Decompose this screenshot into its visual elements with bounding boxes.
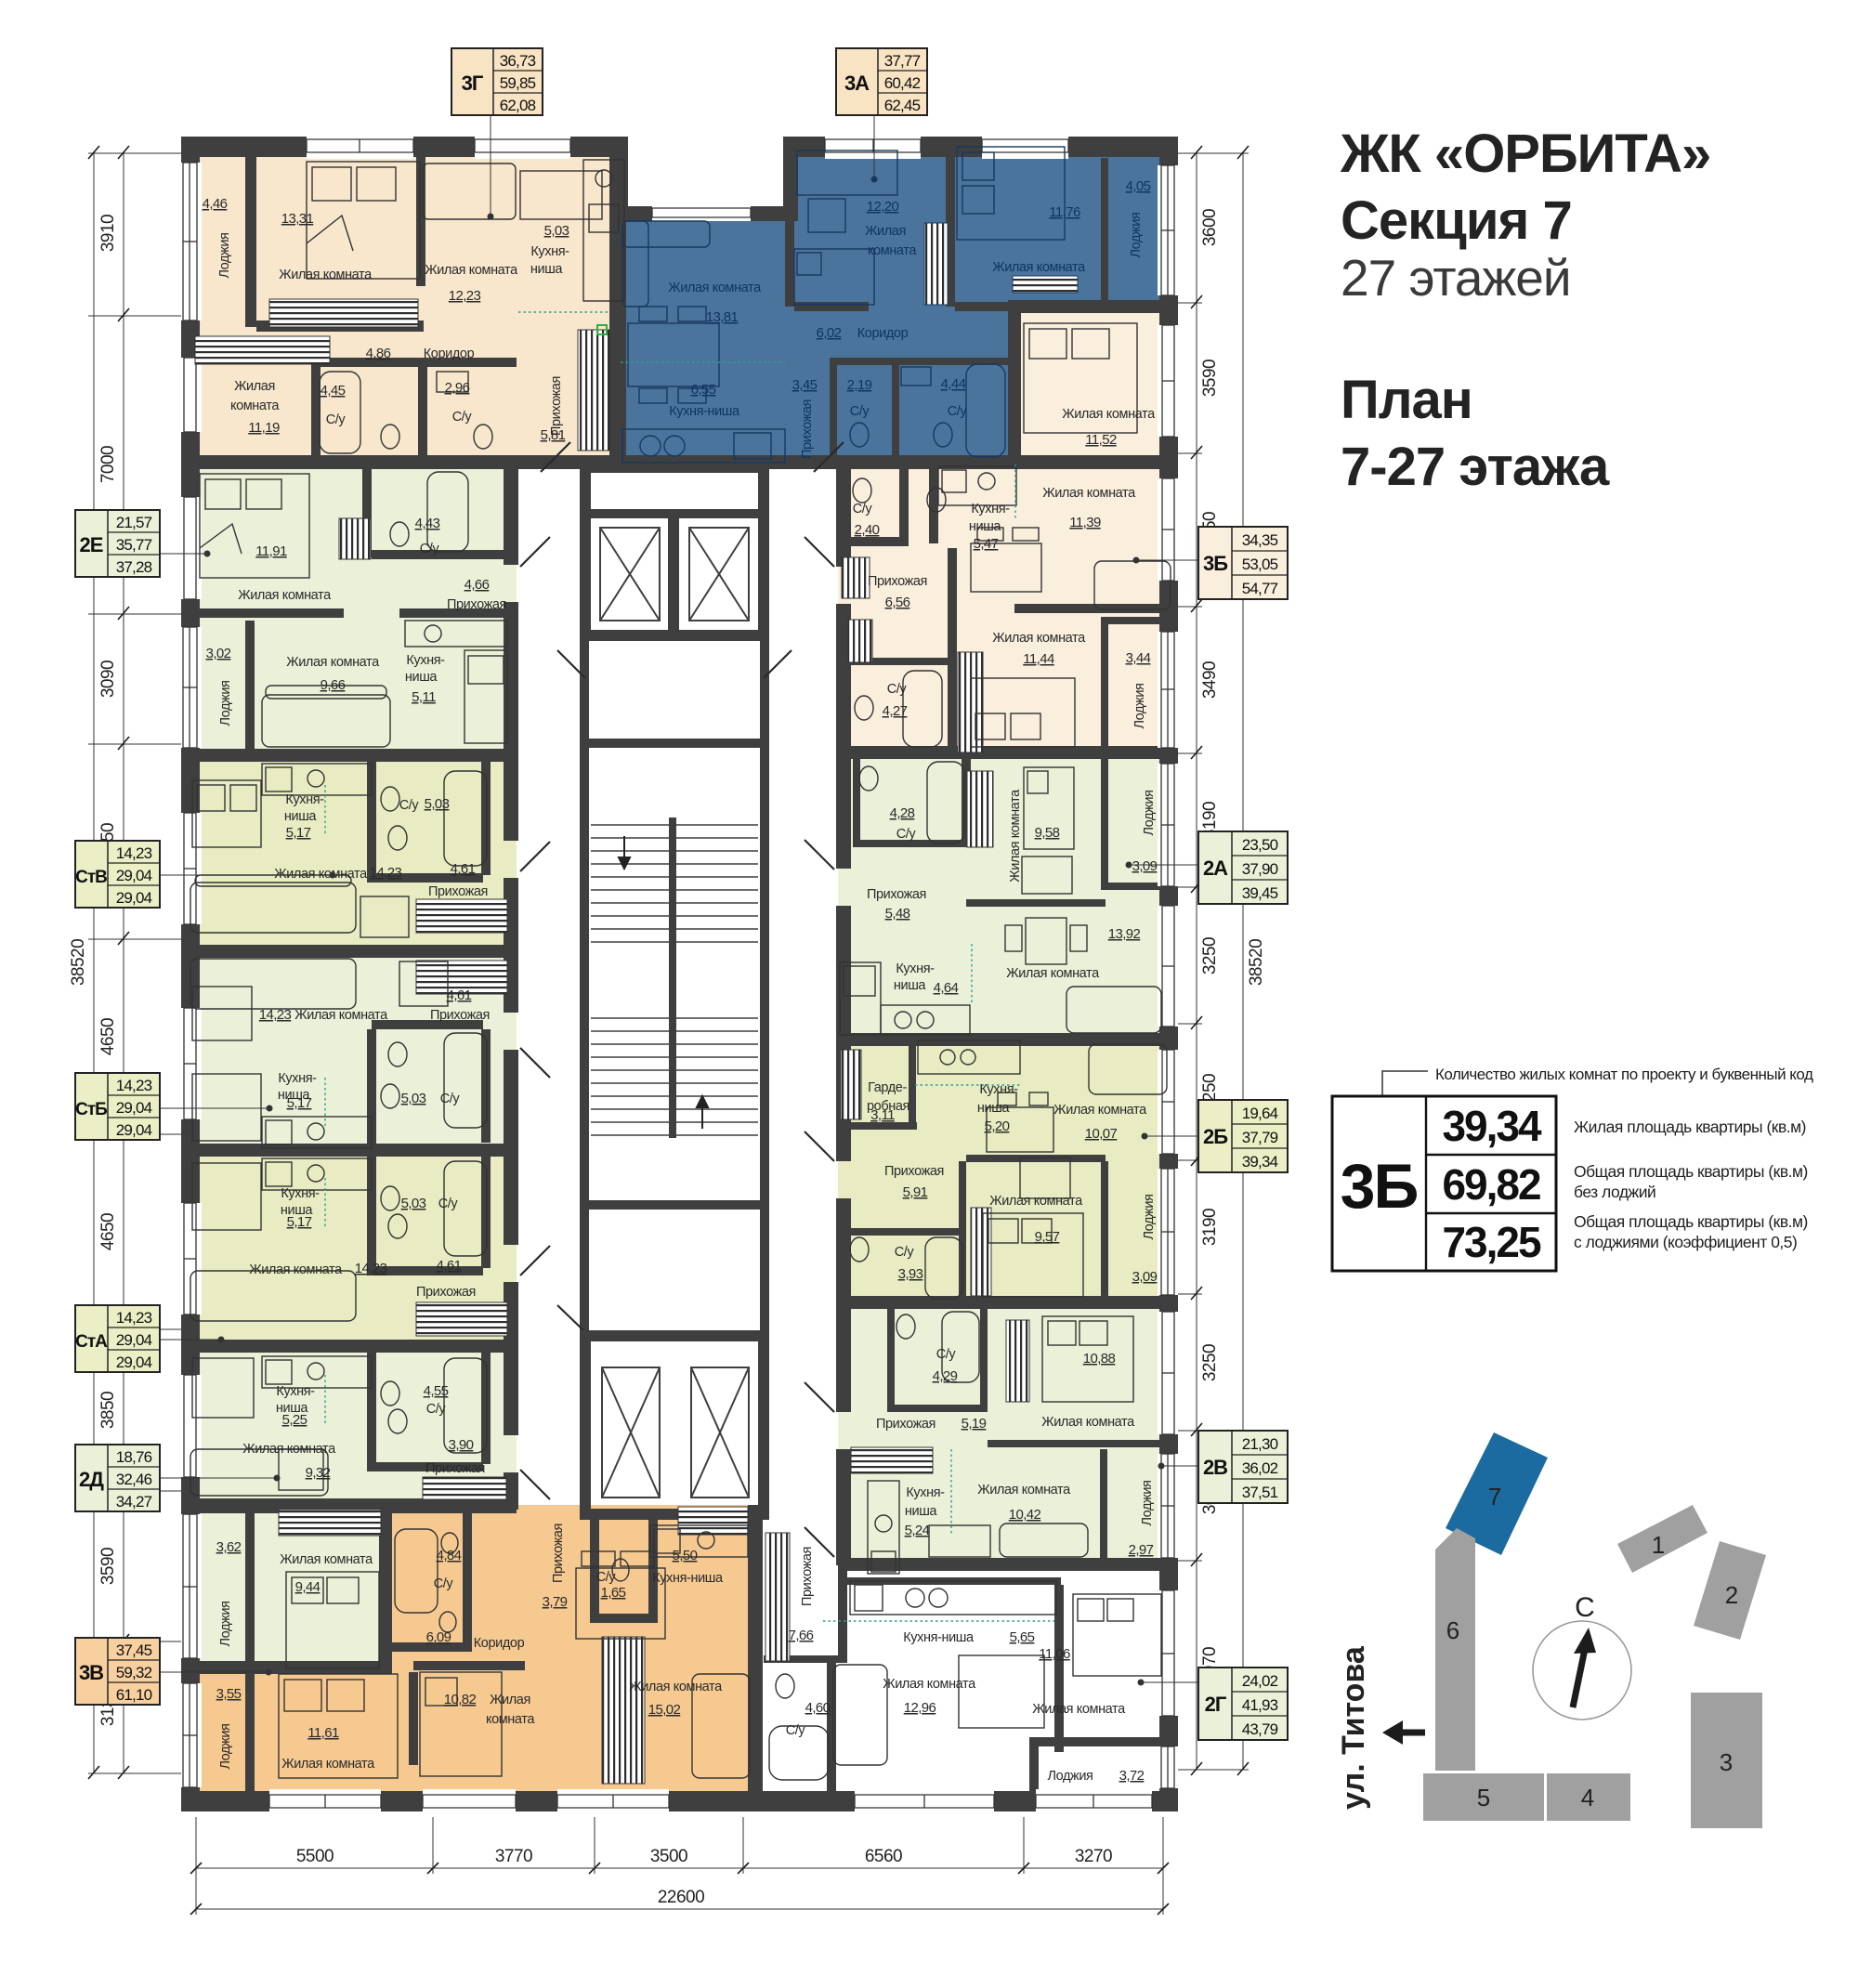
svg-text:29,04: 29,04 [116, 1354, 152, 1371]
svg-text:35,77: 35,77 [116, 536, 152, 554]
svg-text:3250: 3250 [1200, 1344, 1220, 1381]
svg-text:2,40: 2,40 [855, 522, 880, 538]
svg-text:Жилая комната: Жилая комната [1042, 486, 1136, 501]
svg-text:10,82: 10,82 [444, 1692, 477, 1707]
svg-text:Жилая комната: Жилая комната [1006, 966, 1100, 981]
svg-text:СтВ: СтВ [75, 868, 107, 887]
svg-text:Кухня-: Кухня- [530, 244, 569, 259]
svg-text:Жилая комната: Жилая комната [294, 1008, 388, 1023]
svg-text:4,55: 4,55 [424, 1383, 449, 1399]
svg-text:Лоджия: Лоджия [1048, 1769, 1093, 1784]
svg-text:4,61: 4,61 [451, 861, 476, 877]
svg-text:Коридор: Коридор [857, 326, 909, 341]
svg-text:39,34: 39,34 [1442, 1102, 1542, 1150]
svg-text:Жилая комната: Жилая комната [1053, 1103, 1147, 1118]
svg-text:Кухня-: Кухня- [971, 502, 1010, 517]
svg-text:Жилая комната: Жилая комната [989, 1194, 1083, 1209]
svg-text:43,79: 43,79 [1242, 1720, 1278, 1738]
svg-text:2,19: 2,19 [847, 377, 872, 393]
svg-text:Жилая комната: Жилая комната [242, 1442, 336, 1457]
svg-text:3,09: 3,09 [1132, 1269, 1158, 1285]
svg-text:С/у: С/у [850, 404, 870, 419]
svg-text:Кухня-: Кухня- [285, 792, 324, 807]
svg-text:Жилая: Жилая [234, 379, 275, 394]
svg-text:59,32: 59,32 [116, 1664, 152, 1681]
svg-text:3,79: 3,79 [543, 1594, 568, 1610]
svg-text:37,51: 37,51 [1242, 1484, 1278, 1501]
svg-text:с лоджиями (коэффициент 0,5): с лоджиями (коэффициент 0,5) [1574, 1233, 1797, 1251]
svg-text:29,04: 29,04 [116, 1099, 152, 1117]
svg-text:5: 5 [1477, 1784, 1490, 1811]
svg-text:3А: 3А [844, 72, 870, 95]
svg-text:2,96: 2,96 [445, 380, 470, 396]
svg-text:С/у: С/у [452, 410, 473, 425]
svg-text:С/у: С/у [420, 542, 440, 556]
svg-text:22600: 22600 [658, 1888, 704, 1907]
svg-text:Жилая комната: Жилая комната [883, 1677, 976, 1692]
svg-text:3,62: 3,62 [216, 1539, 242, 1555]
svg-text:3,45: 3,45 [792, 377, 818, 393]
svg-text:С/у: С/у [896, 827, 917, 842]
svg-text:Прихожая: Прихожая [416, 1285, 476, 1300]
svg-text:2Г: 2Г [1205, 1693, 1227, 1716]
svg-text:С/у: С/у [326, 412, 347, 427]
svg-text:29,04: 29,04 [116, 1121, 152, 1139]
svg-text:4: 4 [1581, 1784, 1594, 1811]
svg-text:4,61: 4,61 [447, 987, 472, 1003]
svg-text:4,28: 4,28 [890, 805, 915, 821]
svg-text:Коридор: Коридор [474, 1636, 525, 1651]
svg-text:3,11: 3,11 [870, 1107, 895, 1123]
svg-text:Жилая комната: Жилая комната [1062, 407, 1156, 422]
svg-text:4,66: 4,66 [464, 577, 490, 593]
svg-text:4,29: 4,29 [933, 1368, 958, 1384]
svg-text:4,27: 4,27 [883, 703, 908, 719]
svg-text:10,88: 10,88 [1083, 1351, 1116, 1367]
svg-text:3,02: 3,02 [206, 646, 231, 661]
svg-text:С/у: С/у [936, 1347, 957, 1362]
svg-text:4,44: 4,44 [941, 376, 966, 392]
svg-text:7,66: 7,66 [789, 1628, 814, 1643]
svg-text:Жилая: Жилая [865, 224, 906, 239]
svg-text:С: С [1575, 1592, 1595, 1623]
svg-text:С/у: С/у [596, 1570, 617, 1585]
svg-text:5,48: 5,48 [885, 906, 910, 922]
svg-text:37,28: 37,28 [116, 558, 152, 576]
svg-text:Жилая комната: Жилая комната [992, 631, 1086, 646]
svg-text:Количество жилых комнат по про: Количество жилых комнат по проекту и бук… [1435, 1066, 1813, 1083]
svg-text:С/у: С/у [438, 1197, 459, 1211]
svg-text:2,97: 2,97 [1129, 1542, 1154, 1558]
svg-text:Общая площадь квартиры (кв.м): Общая площадь квартиры (кв.м) [1574, 1212, 1808, 1231]
svg-text:С/у: С/у [948, 404, 968, 419]
svg-text:ул. Титова: ул. Титова [1336, 1645, 1371, 1810]
svg-text:36,73: 36,73 [500, 52, 536, 70]
svg-text:34,27: 34,27 [116, 1493, 152, 1511]
svg-text:7-27 этажа: 7-27 этажа [1341, 437, 1610, 497]
svg-text:3,93: 3,93 [898, 1266, 923, 1282]
svg-text:4,43: 4,43 [415, 516, 440, 531]
svg-text:11,76: 11,76 [1049, 204, 1080, 220]
svg-text:4650: 4650 [98, 1018, 118, 1055]
svg-text:9,66: 9,66 [321, 677, 346, 693]
svg-text:1,65: 1,65 [601, 1585, 626, 1601]
svg-text:2В: 2В [1203, 1456, 1227, 1479]
svg-text:11,39: 11,39 [1069, 515, 1101, 530]
svg-text:Кухня-ниша: Кухня-ниша [669, 404, 740, 419]
svg-text:3090: 3090 [98, 660, 118, 698]
svg-text:ниша: ниша [977, 1101, 1011, 1116]
svg-text:5,47: 5,47 [974, 536, 999, 552]
svg-text:Прихожая: Прихожая [430, 1008, 490, 1023]
svg-text:ниша: ниша [284, 809, 318, 824]
svg-text:5,25: 5,25 [282, 1412, 307, 1428]
svg-text:3,09: 3,09 [1132, 858, 1158, 874]
svg-text:Жилая комната: Жилая комната [1041, 1415, 1135, 1430]
svg-text:Кухня-: Кухня- [276, 1384, 315, 1399]
svg-text:Кухня-: Кухня- [979, 1082, 1018, 1097]
svg-text:Кухня-: Кухня- [896, 961, 935, 976]
svg-text:Гарде-: Гарде- [868, 1080, 907, 1095]
svg-text:Лоджия: Лоджия [1129, 213, 1144, 258]
svg-text:Жилая: Жилая [490, 1693, 530, 1707]
svg-text:3,72: 3,72 [1119, 1768, 1145, 1784]
svg-text:С/у: С/у [440, 1092, 461, 1106]
svg-text:Жилая площадь квартиры (кв.м): Жилая площадь квартиры (кв.м) [1574, 1118, 1806, 1136]
svg-text:3490: 3490 [1200, 661, 1220, 699]
svg-text:С/у: С/у [853, 502, 873, 517]
svg-text:6,56: 6,56 [885, 595, 910, 610]
svg-text:Кухня-ниша: Кухня-ниша [903, 1630, 975, 1645]
svg-text:29,04: 29,04 [116, 889, 152, 907]
svg-text:39,45: 39,45 [1242, 884, 1278, 902]
svg-text:60,42: 60,42 [884, 74, 921, 92]
svg-text:Лоджия: Лоджия [217, 233, 232, 279]
svg-text:С/у: С/у [434, 1576, 454, 1591]
svg-text:6: 6 [1446, 1616, 1459, 1644]
svg-text:Прихожая: Прихожая [551, 1524, 566, 1583]
svg-text:62,45: 62,45 [884, 97, 921, 114]
svg-text:ниша: ниша [894, 978, 927, 993]
svg-text:Прихожая: Прихожая [800, 399, 815, 459]
svg-text:27 этажей: 27 этажей [1341, 249, 1571, 307]
svg-text:Кухня-: Кухня- [281, 1186, 320, 1201]
svg-text:1: 1 [1652, 1531, 1665, 1559]
svg-text:5500: 5500 [296, 1847, 334, 1866]
svg-text:2Д: 2Д [79, 1468, 104, 1491]
svg-text:3250: 3250 [1200, 937, 1220, 974]
svg-text:3910: 3910 [98, 215, 118, 252]
svg-text:39,34: 39,34 [1242, 1153, 1278, 1171]
svg-text:Прихожая: Прихожая [425, 1461, 485, 1476]
svg-text:СтА: СтА [75, 1332, 108, 1352]
svg-text:Жилая комната: Жилая комната [425, 263, 518, 278]
svg-text:Прихожая: Прихожая [428, 884, 488, 899]
svg-text:5,81: 5,81 [541, 427, 566, 443]
svg-text:2А: 2А [1203, 857, 1228, 880]
svg-text:4,86: 4,86 [366, 346, 391, 361]
svg-text:3Г: 3Г [462, 72, 484, 95]
svg-text:Коридор: Коридор [424, 347, 475, 361]
svg-text:Жилая комната: Жилая комната [279, 268, 373, 282]
svg-text:Кухня-ниша: Кухня-ниша [652, 1571, 724, 1586]
svg-text:14,23: 14,23 [370, 865, 402, 881]
svg-text:СтБ: СтБ [75, 1100, 107, 1119]
svg-text:План: План [1341, 370, 1472, 430]
svg-text:59,85: 59,85 [500, 74, 536, 92]
svg-text:5,24: 5,24 [905, 1523, 930, 1538]
svg-text:11,19: 11,19 [248, 420, 280, 436]
svg-text:29,04: 29,04 [116, 867, 152, 884]
svg-text:2: 2 [1725, 1581, 1738, 1609]
svg-text:Лоджия: Лоджия [1142, 791, 1157, 836]
svg-text:37,77: 37,77 [884, 52, 921, 70]
svg-text:38520: 38520 [69, 939, 88, 986]
svg-text:21,57: 21,57 [116, 514, 152, 531]
svg-text:4,61: 4,61 [437, 1258, 462, 1274]
svg-text:21,30: 21,30 [1242, 1435, 1278, 1453]
svg-text:53,05: 53,05 [1242, 556, 1278, 573]
svg-text:12,20: 12,20 [867, 199, 899, 215]
svg-text:23,50: 23,50 [1242, 836, 1278, 854]
svg-text:С/у: С/у [786, 1723, 806, 1738]
svg-text:73,25: 73,25 [1442, 1218, 1541, 1266]
svg-text:Прихожая: Прихожая [867, 887, 926, 902]
svg-text:3590: 3590 [98, 1548, 118, 1585]
svg-text:4,84: 4,84 [437, 1548, 462, 1563]
svg-text:Жилая комната: Жилая комната [668, 281, 762, 295]
svg-text:2Е: 2Е [80, 533, 103, 556]
svg-text:Прихожая: Прихожая [884, 1164, 944, 1179]
svg-text:5,17: 5,17 [287, 1214, 312, 1230]
svg-text:комната: комната [230, 399, 280, 413]
svg-text:11,61: 11,61 [307, 1725, 339, 1741]
svg-text:Кухня-: Кухня- [906, 1485, 945, 1500]
svg-text:Прихожая: Прихожая [800, 1547, 815, 1606]
svg-text:5,17: 5,17 [286, 825, 311, 841]
svg-text:4,64: 4,64 [934, 980, 959, 996]
svg-text:14,23: 14,23 [116, 1077, 152, 1094]
svg-text:69,82: 69,82 [1442, 1160, 1540, 1209]
svg-text:19,64: 19,64 [1242, 1105, 1278, 1122]
svg-text:9,32: 9,32 [306, 1465, 331, 1481]
svg-text:3770: 3770 [495, 1847, 532, 1866]
svg-text:ниша: ниша [530, 262, 564, 277]
svg-text:9,57: 9,57 [1035, 1229, 1060, 1245]
svg-text:Секция 7: Секция 7 [1341, 190, 1572, 251]
svg-text:Лоджия: Лоджия [218, 1724, 233, 1770]
svg-text:5,19: 5,19 [962, 1416, 987, 1432]
svg-text:6,55: 6,55 [691, 382, 716, 398]
svg-text:11,44: 11,44 [1023, 651, 1054, 667]
svg-text:Жилая комната: Жилая комната [249, 1262, 343, 1277]
svg-text:11,52: 11,52 [1085, 432, 1117, 448]
svg-text:Прихожая: Прихожая [868, 574, 927, 589]
svg-text:5,03: 5,03 [425, 796, 450, 812]
svg-text:ниша: ниша [905, 1504, 938, 1519]
svg-text:Жилая комната: Жилая комната [274, 867, 368, 882]
svg-text:3,55: 3,55 [216, 1686, 242, 1702]
svg-text:комната: комната [486, 1712, 535, 1727]
svg-text:14,23: 14,23 [116, 844, 152, 862]
svg-text:Жилая комната: Жилая комната [1032, 1702, 1126, 1717]
svg-text:32,46: 32,46 [116, 1471, 152, 1488]
svg-text:5,03: 5,03 [544, 223, 569, 239]
svg-text:13,92: 13,92 [1108, 926, 1141, 942]
svg-text:38520: 38520 [1247, 939, 1266, 986]
svg-text:12,96: 12,96 [904, 1700, 936, 1716]
svg-text:Жилая комната: Жилая комната [281, 1757, 375, 1772]
svg-text:37,79: 37,79 [1242, 1129, 1278, 1146]
svg-text:24,02: 24,02 [1242, 1672, 1278, 1690]
svg-text:41,93: 41,93 [1242, 1696, 1278, 1714]
svg-text:9,44: 9,44 [295, 1579, 321, 1595]
svg-text:12,23: 12,23 [449, 288, 481, 304]
svg-text:34,35: 34,35 [1242, 531, 1278, 549]
svg-text:комната: комната [868, 243, 917, 258]
svg-text:18,76: 18,76 [116, 1448, 152, 1466]
svg-text:Жилая комната: Жилая комната [286, 655, 380, 670]
svg-text:5,17: 5,17 [287, 1095, 312, 1111]
svg-text:61,10: 61,10 [116, 1686, 152, 1704]
svg-text:4,45: 4,45 [321, 383, 346, 399]
svg-text:Лоджия: Лоджия [218, 681, 233, 726]
svg-text:Лоджия: Лоджия [218, 1602, 233, 1647]
svg-text:6,02: 6,02 [817, 325, 842, 341]
svg-text:Жилая комната: Жилая комната [238, 588, 332, 603]
svg-text:Жилая комната: Жилая комната [280, 1552, 373, 1567]
svg-text:10,07: 10,07 [1085, 1126, 1118, 1142]
svg-text:С/у: С/у [399, 798, 420, 813]
svg-text:Жилая комната: Жилая комната [992, 260, 1086, 275]
svg-text:Жилая комната: Жилая комната [977, 1483, 1071, 1498]
svg-text:10,42: 10,42 [1009, 1507, 1041, 1523]
svg-text:4650: 4650 [98, 1213, 118, 1250]
svg-text:14,23: 14,23 [116, 1309, 152, 1327]
svg-text:Прихожая: Прихожая [876, 1417, 936, 1432]
svg-text:без лоджий: без лоджий [1574, 1183, 1655, 1201]
svg-text:3500: 3500 [650, 1847, 687, 1866]
svg-text:5,50: 5,50 [673, 1548, 698, 1563]
svg-text:13,31: 13,31 [281, 211, 314, 227]
svg-text:5,03: 5,03 [401, 1196, 426, 1211]
svg-text:Жилая комната: Жилая комната [629, 1680, 723, 1694]
svg-text:3,90: 3,90 [449, 1437, 474, 1453]
svg-text:3: 3 [1720, 1748, 1733, 1776]
svg-text:14,23: 14,23 [259, 1007, 292, 1023]
svg-text:С/у: С/у [887, 682, 908, 697]
svg-text:29,04: 29,04 [116, 1331, 152, 1349]
svg-text:11,91: 11,91 [255, 543, 287, 559]
svg-text:Прихожая: Прихожая [447, 597, 506, 612]
svg-text:13,81: 13,81 [706, 309, 739, 325]
svg-text:3,44: 3,44 [1126, 650, 1151, 666]
svg-text:15,02: 15,02 [648, 1702, 681, 1718]
svg-text:5,03: 5,03 [401, 1091, 426, 1106]
svg-text:3190: 3190 [1200, 1209, 1220, 1246]
svg-text:3270: 3270 [1075, 1847, 1112, 1866]
svg-text:Лоджия: Лоджия [1140, 1481, 1155, 1526]
svg-text:37,45: 37,45 [116, 1641, 152, 1659]
svg-text:Общая площадь квартиры (кв.м): Общая площадь квартиры (кв.м) [1574, 1162, 1808, 1181]
svg-text:5,65: 5,65 [1010, 1629, 1035, 1645]
svg-text:14,23: 14,23 [355, 1261, 387, 1276]
svg-text:36,02: 36,02 [1242, 1459, 1278, 1477]
svg-text:5,91: 5,91 [903, 1184, 928, 1200]
svg-text:Лоджия: Лоджия [1132, 684, 1147, 729]
svg-text:9,58: 9,58 [1035, 825, 1060, 841]
svg-text:ЖК «ОРБИТА»: ЖК «ОРБИТА» [1340, 124, 1710, 184]
svg-text:54,77: 54,77 [1242, 580, 1278, 597]
svg-text:ниша: ниша [405, 670, 438, 685]
svg-text:3590: 3590 [1200, 360, 1220, 397]
svg-text:6,09: 6,09 [426, 1629, 451, 1645]
svg-text:2Б: 2Б [1203, 1125, 1228, 1148]
svg-text:3600: 3600 [1200, 209, 1220, 246]
svg-text:37,90: 37,90 [1242, 860, 1278, 878]
svg-text:62,08: 62,08 [500, 97, 536, 114]
svg-text:Кухня-: Кухня- [278, 1071, 317, 1086]
svg-text:4,05: 4,05 [1126, 178, 1151, 194]
svg-text:С/у: С/у [426, 1402, 447, 1417]
svg-text:3Б: 3Б [1341, 1151, 1418, 1222]
svg-text:3Б: 3Б [1203, 552, 1228, 575]
svg-text:4,60: 4,60 [805, 1700, 831, 1716]
svg-text:11,06: 11,06 [1039, 1646, 1070, 1662]
svg-text:5,20: 5,20 [985, 1118, 1010, 1134]
svg-text:3В: 3В [79, 1661, 103, 1684]
svg-text:ниша: ниша [969, 519, 1002, 534]
svg-text:4,46: 4,46 [203, 196, 228, 212]
svg-text:С/у: С/у [895, 1245, 915, 1260]
svg-text:3850: 3850 [98, 1392, 118, 1429]
svg-text:7000: 7000 [98, 446, 118, 483]
svg-text:Жилая комната: Жилая комната [1008, 789, 1023, 883]
svg-text:6560: 6560 [865, 1847, 902, 1866]
svg-text:Лоджия: Лоджия [1142, 1195, 1157, 1240]
svg-text:5,11: 5,11 [412, 689, 436, 705]
svg-text:7: 7 [1488, 1483, 1501, 1511]
svg-text:Кухня-: Кухня- [406, 653, 445, 668]
